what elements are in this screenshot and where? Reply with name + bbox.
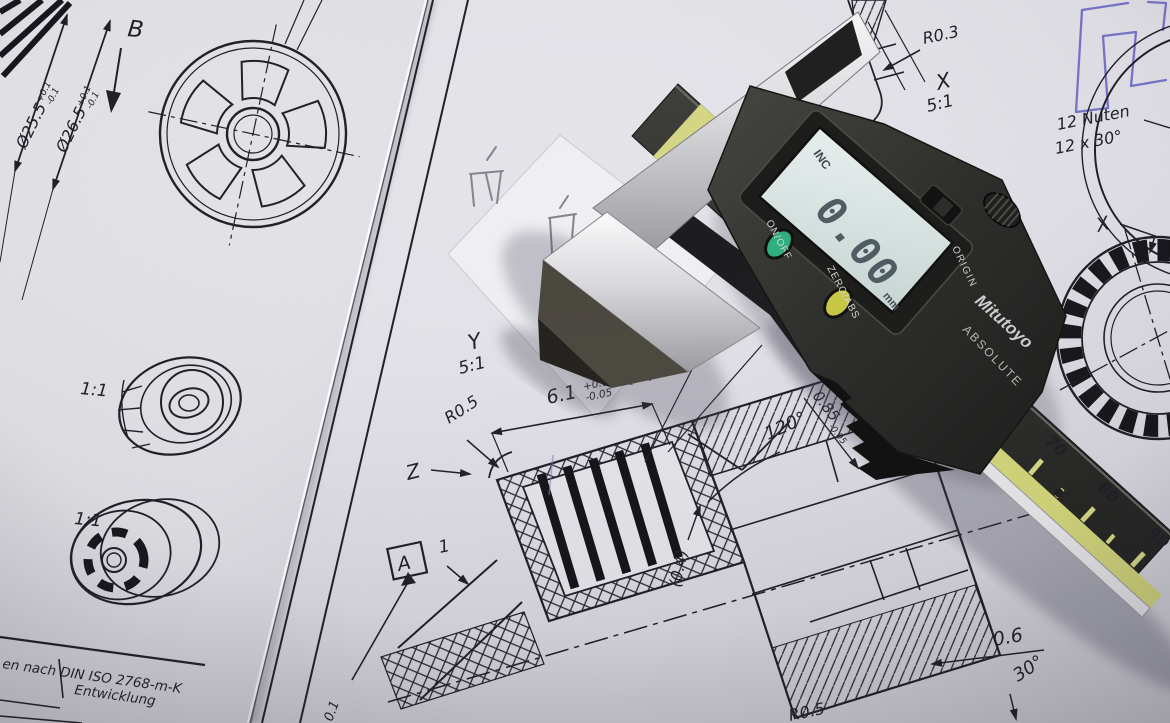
photo-vignette [0, 0, 1170, 723]
photo-calipers-on-technical-drawing: Ø25.5+0.1-0.1 Ø26.5+0.1-0.1 B 1:1 [0, 0, 1170, 723]
scene: Ø25.5+0.1-0.1 Ø26.5+0.1-0.1 B 1:1 [0, 0, 1170, 723]
